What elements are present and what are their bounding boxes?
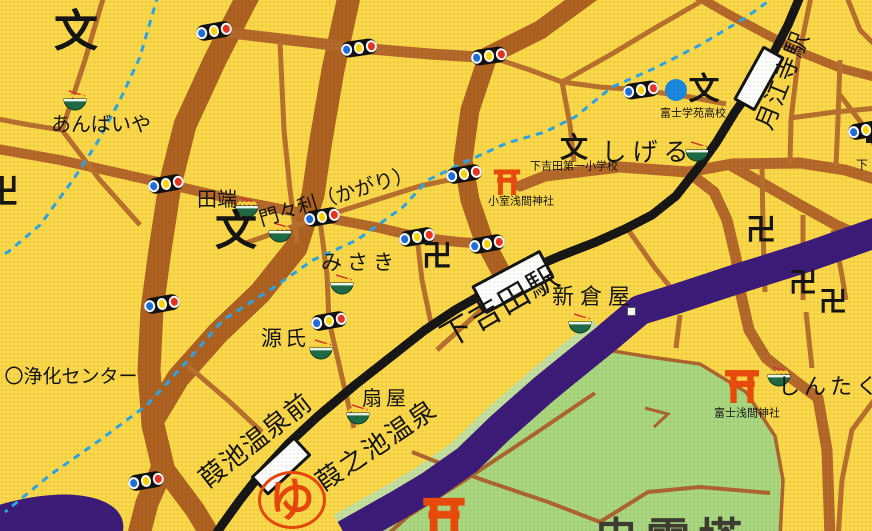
tl-dot-blue [847,125,860,139]
temple-manji-edge: 卍 [0,175,19,209]
tl-dot-yellow [860,123,872,137]
temple-manji-3: 卍 [789,269,817,297]
tl-dot-yellow [208,24,221,38]
label-misaki: みさき [321,253,399,274]
tl-dot-yellow [323,314,336,328]
ramen-bowl-icon [62,89,88,111]
temple-manji-1: 卍 [422,242,452,272]
tl-dot-yellow [635,83,647,96]
tl-dot-yellow [160,177,173,191]
tl-dot-yellow [483,49,495,62]
school-symbol-fujigakuen: 文 [689,75,720,106]
temple-manji-4: 卍 [819,288,847,316]
tl-dot-blue [195,26,208,40]
label-joka-center: 〇浄化センター [4,368,137,387]
label-chureito: 忠霊塔 [594,518,750,531]
tl-dot-blue [340,43,352,56]
label-ogiya: 扇屋 [362,388,410,408]
label-genji: 源氏 [261,329,309,350]
label-fuji-sengen: 富士浅間神社 [714,408,780,419]
tl-dot-blue [143,299,156,313]
tl-dot-blue [445,169,458,183]
tl-dot-blue [310,316,323,330]
label-fujigakuen-hs: 富士学苑高校 [660,108,726,119]
tl-dot-blue [147,179,160,193]
torii-icon [422,494,466,531]
ramen-bowl-icon [567,312,593,334]
tl-dot-yellow [140,474,153,488]
map-canvas[interactable]: 文あんばいや田端門々利（かがり）文みさき源氏〇浄化センター卍卍卍卍卍しげる文富士… [0,0,872,531]
tl-dot-yellow [458,167,471,181]
torii-icon [724,367,760,403]
tl-dot-blue [398,232,411,246]
tl-dot-yellow [156,297,169,311]
label-shintaku: しんたく [778,377,872,399]
tl-dot-blue [622,85,634,98]
label-komuro-sengen: 小室浅間神社 [488,196,554,207]
school-symbol-shimoyoshida-1st: 文 [560,134,588,162]
tl-dot-blue [470,51,482,64]
river-blob [0,470,138,531]
label-edge-partial: 下 [856,159,868,171]
label-shimoyoshida-1st-es: 下吉田第一小学校 [530,161,618,172]
tl-dot-blue [127,476,140,490]
tl-dot-yellow [481,237,494,251]
tl-dot-blue [468,239,481,253]
temple-manji-2: 卍 [746,216,776,246]
ramen-bowl-icon [329,273,355,295]
tl-dot-yellow [353,41,365,54]
school-symbol-nw: 文 [54,10,98,54]
school-symbol-west: 文 [215,210,257,252]
torii-icon [493,167,521,195]
ramen-bowl-icon [308,338,334,360]
label-anbaiya: あんばいや [51,114,151,134]
school-circle-fujigakuen [665,79,687,101]
onsen-yu-character: ゆ [269,477,315,523]
